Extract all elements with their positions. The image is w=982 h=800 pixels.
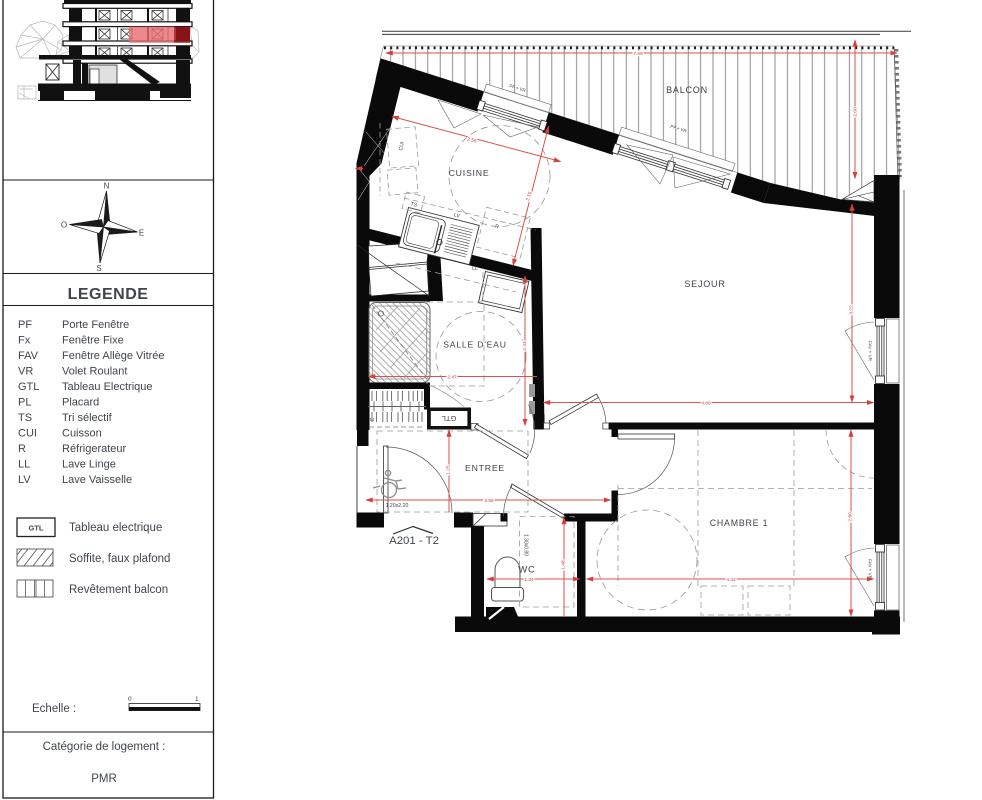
- svg-text:1.48: 1.48: [560, 560, 566, 570]
- svg-text:1.25: 1.25: [445, 465, 451, 475]
- svg-text:3.22: 3.22: [849, 305, 855, 315]
- svg-text:CUISINE: CUISINE: [449, 168, 490, 178]
- svg-text:1.20x2.20: 1.20x2.20: [386, 503, 409, 509]
- svg-text:ENTREE: ENTREE: [465, 463, 505, 473]
- svg-text:Volet Roulant: Volet Roulant: [62, 366, 127, 378]
- svg-text:Revêtement balcon: Revêtement balcon: [69, 584, 168, 596]
- svg-text:O: O: [61, 221, 67, 230]
- svg-text:Fx: Fx: [18, 335, 31, 347]
- svg-text:4.80: 4.80: [701, 400, 711, 406]
- svg-text:GTL: GTL: [29, 524, 44, 533]
- svg-text:FAV + VR: FAV + VR: [868, 559, 873, 580]
- svg-text:Lave Linge: Lave Linge: [62, 459, 116, 471]
- svg-text:1: 1: [195, 696, 199, 703]
- svg-text:SALLE D'EAU: SALLE D'EAU: [443, 340, 506, 350]
- svg-text:Placard: Placard: [62, 397, 99, 409]
- svg-text:Fenêtre Fixe: Fenêtre Fixe: [62, 335, 124, 347]
- svg-text:Echelle :: Echelle :: [32, 703, 76, 715]
- svg-text:PMR: PMR: [91, 773, 117, 785]
- svg-text:4.32: 4.32: [726, 577, 736, 583]
- svg-text:FAV: FAV: [18, 350, 39, 362]
- svg-text:Cuisson: Cuisson: [62, 428, 102, 440]
- svg-text:0: 0: [128, 696, 132, 703]
- svg-text:Lave Vaisselle: Lave Vaisselle: [62, 474, 132, 486]
- svg-text:PF: PF: [18, 319, 32, 331]
- svg-text:SEJOUR: SEJOUR: [684, 279, 725, 289]
- svg-text:S: S: [96, 264, 101, 273]
- svg-text:Catégorie de logement :: Catégorie de logement :: [43, 741, 166, 753]
- svg-text:VR: VR: [18, 366, 33, 378]
- svg-text:Fenêtre Allège Vitrée: Fenêtre Allège Vitrée: [62, 350, 165, 362]
- svg-text:2.80: 2.80: [848, 512, 854, 522]
- svg-text:2.43: 2.43: [522, 341, 528, 351]
- svg-text:Réfrigerateur: Réfrigerateur: [62, 443, 127, 455]
- svg-text:Porte Fenêtre: Porte Fenêtre: [62, 319, 129, 331]
- svg-text:N: N: [104, 182, 110, 191]
- svg-text:2.47: 2.47: [447, 374, 457, 380]
- svg-text:LV: LV: [18, 474, 31, 486]
- svg-text:7.59: 7.59: [633, 51, 643, 57]
- svg-text:Tableau Electrique: Tableau Electrique: [62, 381, 153, 393]
- svg-text:2.00: 2.00: [853, 107, 859, 117]
- svg-text:3.58: 3.58: [484, 498, 494, 504]
- svg-text:LEGENDE: LEGENDE: [68, 286, 149, 303]
- svg-text:CHAMBRE 1: CHAMBRE 1: [710, 518, 769, 528]
- svg-text:GTL: GTL: [442, 414, 457, 423]
- svg-text:Tableau electrique: Tableau electrique: [69, 522, 162, 534]
- svg-text:1.34: 1.34: [524, 577, 534, 583]
- svg-text:E: E: [139, 229, 144, 238]
- svg-text:PL: PL: [368, 417, 374, 422]
- svg-text:WC: WC: [518, 565, 536, 576]
- svg-text:Soffite, faux plafond: Soffite, faux plafond: [69, 553, 170, 565]
- svg-text:CUI: CUI: [18, 428, 37, 440]
- svg-text:GTL: GTL: [18, 381, 39, 393]
- svg-text:FAV + VR: FAV + VR: [868, 341, 873, 362]
- svg-text:BALCON: BALCON: [666, 85, 708, 95]
- svg-text:TS: TS: [18, 412, 32, 424]
- svg-text:1.30x0.80: 1.30x0.80: [523, 534, 529, 556]
- svg-text:LL: LL: [472, 266, 478, 272]
- svg-text:R: R: [18, 443, 26, 455]
- svg-text:LL: LL: [18, 459, 30, 471]
- svg-text:Tri sélectif: Tri sélectif: [62, 412, 113, 424]
- svg-text:A201 - T2: A201 - T2: [389, 535, 439, 547]
- svg-text:PL: PL: [18, 397, 31, 409]
